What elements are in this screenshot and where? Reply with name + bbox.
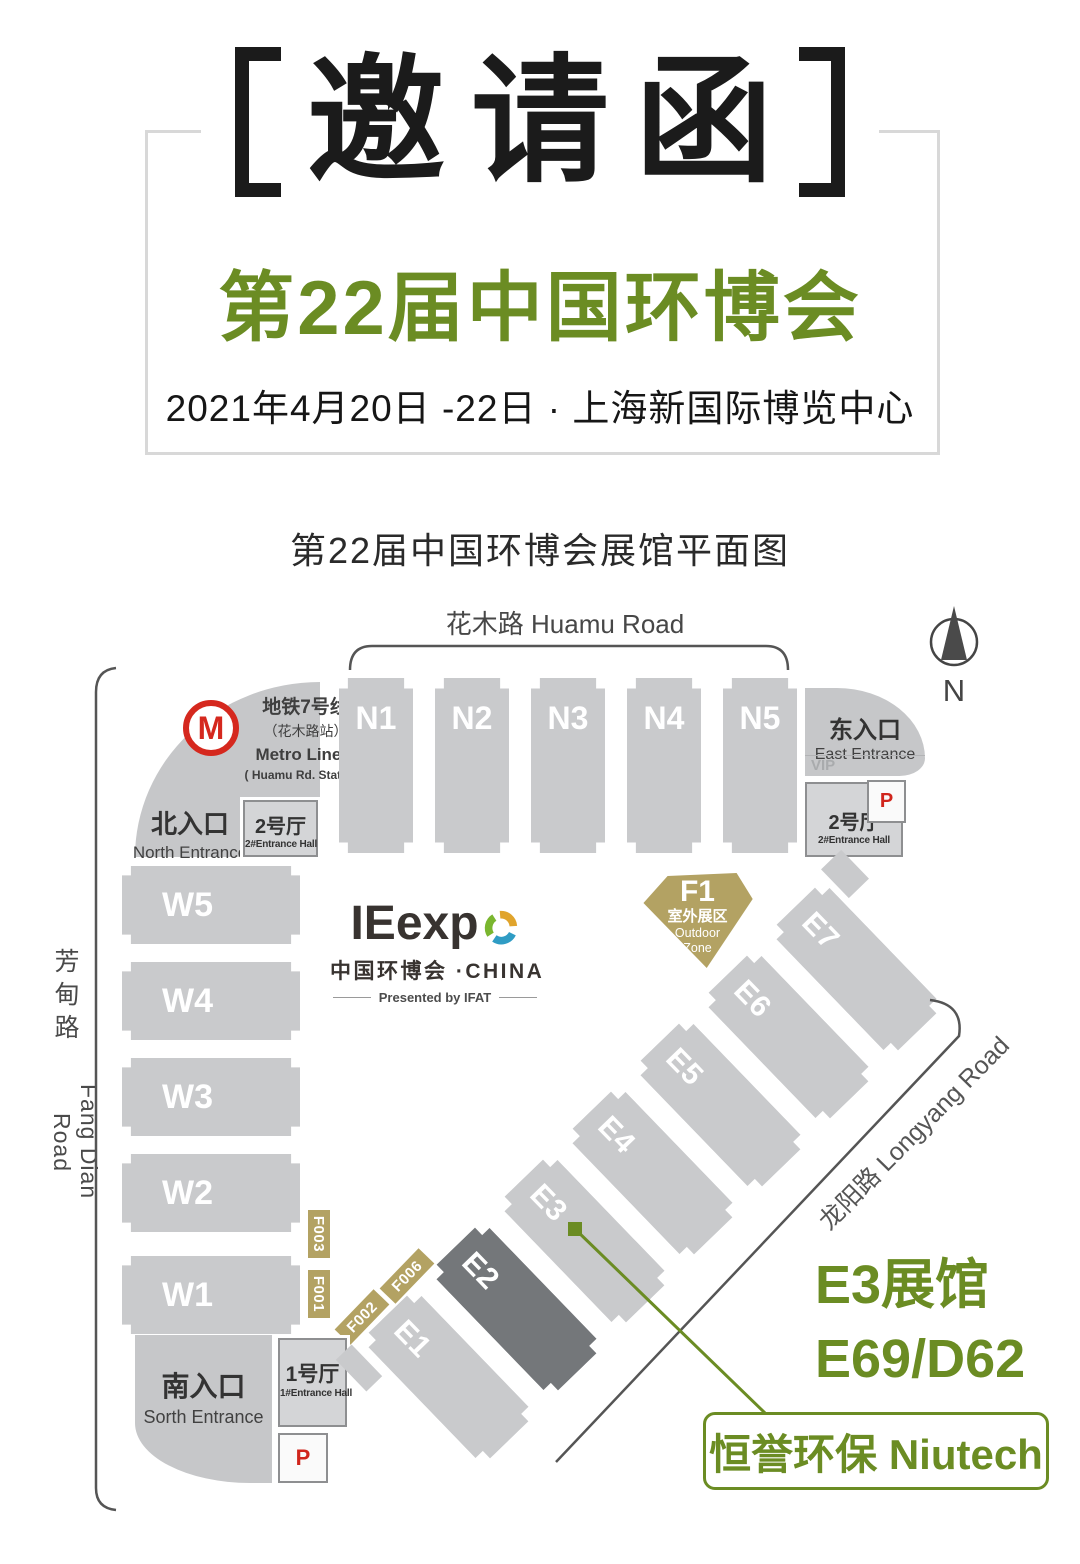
presented-by: Presented by IFAT <box>379 990 491 1005</box>
north-entrance-en: North Entrance <box>125 843 255 863</box>
callout-company: 恒誉环保 Niutech <box>709 1421 1043 1482</box>
south-entrance-cn: 南入口 <box>135 1365 272 1405</box>
north-entrance-cn: 北入口 <box>125 804 255 841</box>
fangdian-cn-char: 甸 <box>48 979 86 1012</box>
f-label-f006: F006 <box>380 1248 435 1304</box>
fangdian-cn-char: 路 <box>48 1012 86 1045</box>
huamu-road-line <box>350 646 788 670</box>
ieexpo-logo: IEexp 中国环博会 ·CHINA Presented by IFAT <box>330 896 540 1005</box>
compass: N <box>924 598 984 709</box>
hall1-cn: 1号厅 <box>280 1358 345 1388</box>
callout-booth: E69/D62 <box>815 1328 1025 1390</box>
ieexpo-wordmark: IEexp <box>350 896 478 951</box>
metro-logo-icon: M <box>183 700 239 756</box>
hall-n3: N3 <box>531 678 605 853</box>
hall-n1: N1 <box>339 678 413 853</box>
floor-plan-map: 花木路 Huamu Road N 芳 甸 路 Fang Dian Road M … <box>0 584 1080 1564</box>
divider-line <box>499 997 537 998</box>
callout-hall: E3展馆 <box>815 1240 989 1319</box>
hall-n2: N2 <box>435 678 509 853</box>
hall-w4: W4 <box>122 962 300 1040</box>
entrance-hall-1: 1号厅 1#Entrance Hall <box>278 1338 347 1427</box>
f1-cn: 室外展区 <box>640 908 755 926</box>
ieexpo-subline: 中国环博会 ·CHINA <box>330 955 540 985</box>
invitation-flyer: 邀请函 第22届中国环博会 2021年4月20日 -22日 · 上海新国际博览中… <box>0 0 1080 1564</box>
map-title: 第22届中国环博会展馆平面图 <box>0 522 1080 574</box>
hall-w1: W1 <box>122 1256 300 1334</box>
parking-northeast: P <box>867 780 906 823</box>
booth-marker-dot <box>568 1222 582 1236</box>
hall-w3: W3 <box>122 1058 300 1136</box>
hall-n4: N4 <box>627 678 701 853</box>
compass-n: N <box>924 673 984 709</box>
hall2-cn: 2号厅 <box>245 810 316 839</box>
hall2-en: 2#Entrance Hall <box>807 835 901 846</box>
f1-code: F1 <box>640 876 755 908</box>
date-venue: 2021年4月20日 -22日 · 上海新国际博览中心 <box>0 378 1080 432</box>
hall-w5: W5 <box>122 866 300 944</box>
hall2-en: 2#Entrance Hall <box>245 839 316 850</box>
f1-en1: Outdoor <box>640 926 755 941</box>
vip-label: VIP <box>805 755 925 776</box>
huamu-road-label: 花木路 Huamu Road <box>315 604 815 641</box>
left-bracket <box>235 47 281 197</box>
divider-line <box>333 997 371 998</box>
fangdian-road-label: 芳 甸 路 Fang Dian Road <box>48 946 86 1227</box>
hall-n5: N5 <box>723 678 797 853</box>
callout-company-box: 恒誉环保 Niutech <box>703 1412 1049 1490</box>
hall1-en: 1#Entrance Hall <box>280 1388 345 1399</box>
east-entrance-area: 东入口 East Entrance VIP <box>805 688 925 776</box>
expo-title: 第22届中国环博会 <box>0 246 1080 356</box>
south-entrance-area: 南入口 Sorth Entrance <box>135 1335 272 1483</box>
entrance-hall-2-north: 2号厅 2#Entrance Hall <box>243 800 318 857</box>
north-arrow-icon <box>924 598 984 670</box>
hall-w2: W2 <box>122 1154 300 1232</box>
right-bracket <box>799 47 845 197</box>
fangdian-en: Fang Dian Road <box>48 1057 102 1227</box>
f-label-f003: F003 <box>308 1210 330 1258</box>
invitation-title: 邀请函 <box>307 42 799 202</box>
f1-en2: Zone <box>640 941 755 956</box>
parking-south: P <box>278 1433 328 1483</box>
f-label-f001: F001 <box>308 1270 330 1318</box>
south-entrance-en: Sorth Entrance <box>135 1407 272 1428</box>
invitation-title-row: 邀请函 <box>0 42 1080 202</box>
fangdian-cn-char: 芳 <box>48 946 86 979</box>
outdoor-zone-f1: F1 室外展区 Outdoor Zone <box>640 870 755 970</box>
ieexpo-swirl-icon <box>482 909 520 947</box>
east-entrance-cn: 东入口 <box>805 710 925 745</box>
north-entrance-label: 北入口 North Entrance <box>125 804 255 863</box>
